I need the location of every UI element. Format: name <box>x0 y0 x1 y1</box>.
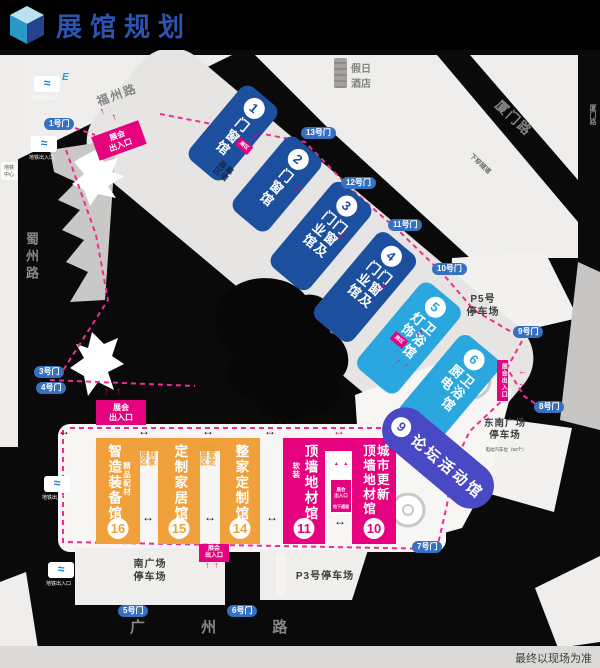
gate-12[interactable]: 12号门 <box>341 177 376 189</box>
direction-arrow-icon: ← <box>518 366 527 376</box>
hall-name: 整家定制馆 <box>233 444 248 522</box>
two-way-arrow-icon: ↔ <box>202 424 214 438</box>
hall-number-badge: 16 <box>108 518 129 539</box>
header: 展馆规划 <box>0 0 600 50</box>
hall-14-whole-home[interactable]: 整家定制馆 14 <box>220 438 260 544</box>
direction-arrow-icon: ↑ <box>214 560 219 570</box>
hall-16-smart-equipment[interactable]: 智造装备馆 精品配材 16 <box>96 438 140 544</box>
entrance-sublabel: 地下通道 <box>333 504 349 509</box>
exhibition-map-page: 展馆规划 <box>0 0 600 668</box>
metro-entrance-label: 地铁出入口 <box>32 94 57 101</box>
two-way-arrow-icon: ↔ <box>334 514 346 528</box>
hall-side-label: 软装 <box>291 462 299 522</box>
direction-arrow-icon: ↑ <box>116 386 121 397</box>
hall-name: 门窗馆 <box>255 165 295 209</box>
two-way-arrow-icon: ↔ <box>266 510 278 524</box>
gate-11[interactable]: 11号门 <box>388 219 422 231</box>
metro-entrance-label: 地铁出入口 <box>29 154 54 161</box>
hotel-building-icon <box>334 58 347 88</box>
gate-5[interactable]: 5号门 <box>118 605 148 617</box>
gate-1[interactable]: 1号门 <box>44 118 74 130</box>
two-way-arrow-icon: ↔ <box>204 510 216 524</box>
zone-label-custom-home: 定制家 居展区 <box>139 443 156 466</box>
metro-icon[interactable]: ≈ <box>48 562 74 578</box>
road-label-guangzhou: 广 州 路 <box>130 616 313 637</box>
two-way-arrow-icon: ↔ <box>138 424 150 438</box>
hotel-label: 假日 酒店 <box>351 60 371 90</box>
metro-center-sign: 地铁 中心 <box>1 162 17 180</box>
two-way-arrow-icon: ↔ <box>58 424 70 438</box>
hall-number-badge: 14 <box>230 518 251 539</box>
hall-name: 顶墙地材馆 <box>302 444 317 522</box>
person-icon: ▲ <box>334 461 339 467</box>
hall-15-custom-home[interactable]: 定制家居馆 15 <box>158 438 200 544</box>
road-label-shuzhou: 蜀州路 <box>22 232 41 283</box>
gate-4[interactable]: 4号门 <box>36 382 66 394</box>
metro-icon[interactable]: ≈ <box>34 76 60 92</box>
metro-entrance-label: 地铁出入口 <box>42 494 67 501</box>
south-plaza-parking-label: 南广场 停车场 <box>110 558 190 584</box>
gate-10[interactable]: 10号门 <box>432 263 467 275</box>
direction-arrow-icon: ← <box>518 378 527 388</box>
expo-entrance-west[interactable]: 展会 出入口 <box>96 400 146 425</box>
p3-parking-label: P3号停车场 <box>280 570 370 583</box>
dome-ring-south <box>392 494 424 526</box>
two-way-arrow-icon: ↔ <box>333 424 345 438</box>
entrance-label: 展会 出入口 <box>334 487 348 497</box>
hall-number-badge: 9 <box>387 413 415 441</box>
direction-arrow-icon: ↑ <box>104 386 109 397</box>
hall-name: 城市更新 顶墙地材馆 <box>360 444 388 517</box>
gate-8[interactable]: 8号门 <box>534 401 564 413</box>
gate-9[interactable]: 9号门 <box>513 326 543 338</box>
hall-number-badge: 11 <box>294 518 315 539</box>
cube-logo-icon <box>10 6 44 44</box>
expo-entrance-east[interactable]: 展会出入口 <box>497 360 508 401</box>
hall-10-urban-renewal[interactable]: 城市更新 顶墙地材馆 10 <box>352 438 396 544</box>
gate-3[interactable]: 3号门 <box>34 366 64 378</box>
sidewalk-strip <box>0 55 18 447</box>
gate-6[interactable]: 6号门 <box>227 605 257 617</box>
road-label-east-edge: 厦门路 <box>587 104 597 125</box>
metro-exit-letter: E <box>62 72 69 83</box>
footer-disclaimer: 最终以现场为准 <box>0 646 600 668</box>
gate-7[interactable]: 7号门 <box>412 541 442 553</box>
hall-name: 智造装备馆 <box>105 444 120 522</box>
hall-name: 定制家居馆 <box>172 444 187 522</box>
hall-11-ceiling-wall-flooring[interactable]: 软装 顶墙地材馆 11 <box>283 438 325 544</box>
person-icon: ▲ <box>343 461 348 467</box>
hall-number-badge: 15 <box>169 518 190 539</box>
metro-icon[interactable]: ≈ <box>44 476 70 492</box>
underground-entrance-tower[interactable]: ▲ ▲ 展会 出入口 地下通道 <box>330 452 352 514</box>
hall-side-label: 精品配材 <box>122 462 130 522</box>
direction-arrow-icon: ↑ <box>205 560 210 570</box>
metro-icon[interactable]: ≈ <box>31 136 57 152</box>
gate-13[interactable]: 13号门 <box>301 127 336 139</box>
page-title: 展馆规划 <box>56 7 192 44</box>
zone-label-whole-home: 整家定 制展区 <box>199 443 216 466</box>
se-parking-note: 电动汽车位（52个） <box>474 447 538 453</box>
hall-number-badge: 10 <box>364 518 385 539</box>
se-parking-label: 东南广场 停车场 <box>470 418 540 443</box>
metro-entrance-label: 地铁出入口 <box>46 580 71 587</box>
two-way-arrow-icon: ↔ <box>142 510 154 524</box>
two-way-arrow-icon: ↔ <box>264 424 276 438</box>
